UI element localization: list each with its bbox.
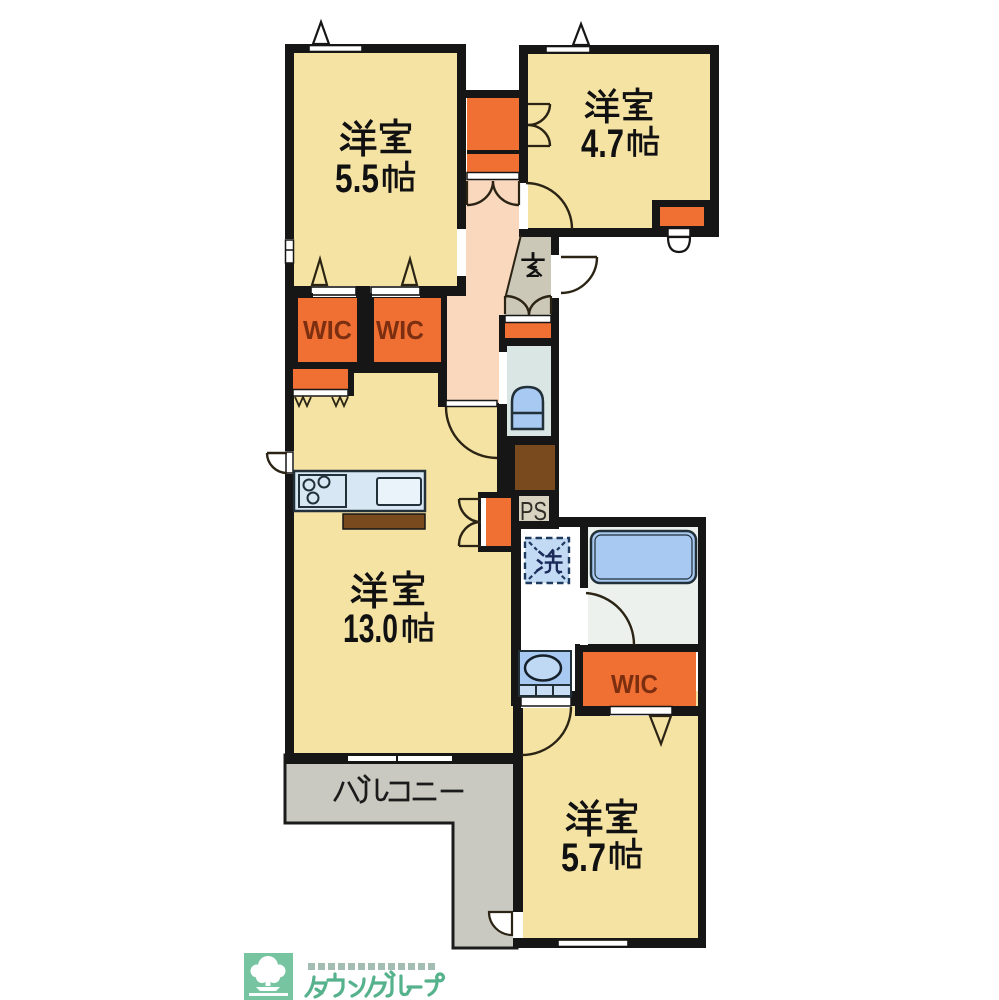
svg-text:WIC: WIC xyxy=(611,669,658,699)
svg-text:4.7: 4.7 xyxy=(581,122,624,166)
svg-text:5.7: 5.7 xyxy=(561,836,606,880)
svg-text:PS: PS xyxy=(520,496,547,526)
svg-text:WIC: WIC xyxy=(376,315,424,345)
svg-text:5.5: 5.5 xyxy=(335,157,379,201)
svg-text:13.0: 13.0 xyxy=(343,607,398,651)
svg-text:WIC: WIC xyxy=(303,315,352,345)
